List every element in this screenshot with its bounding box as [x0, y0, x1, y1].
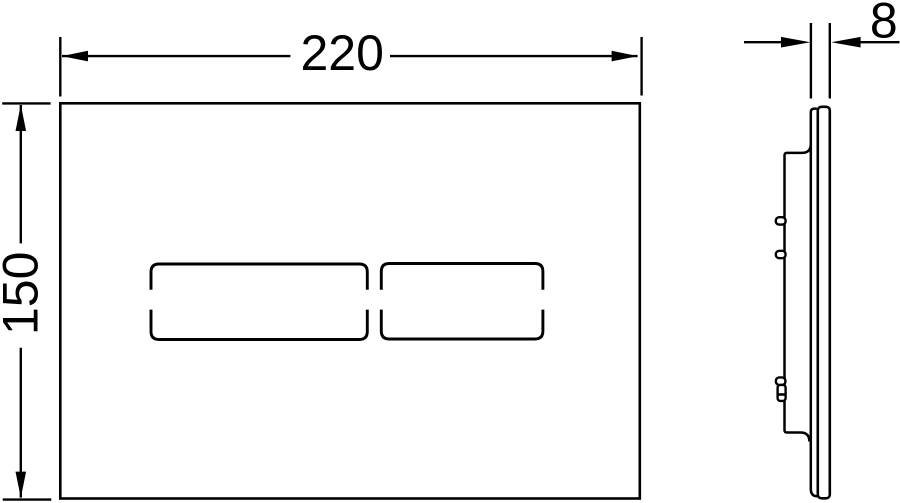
svg-text:220: 220 — [300, 25, 383, 81]
svg-text:150: 150 — [0, 252, 49, 335]
svg-text:8: 8 — [870, 0, 898, 48]
